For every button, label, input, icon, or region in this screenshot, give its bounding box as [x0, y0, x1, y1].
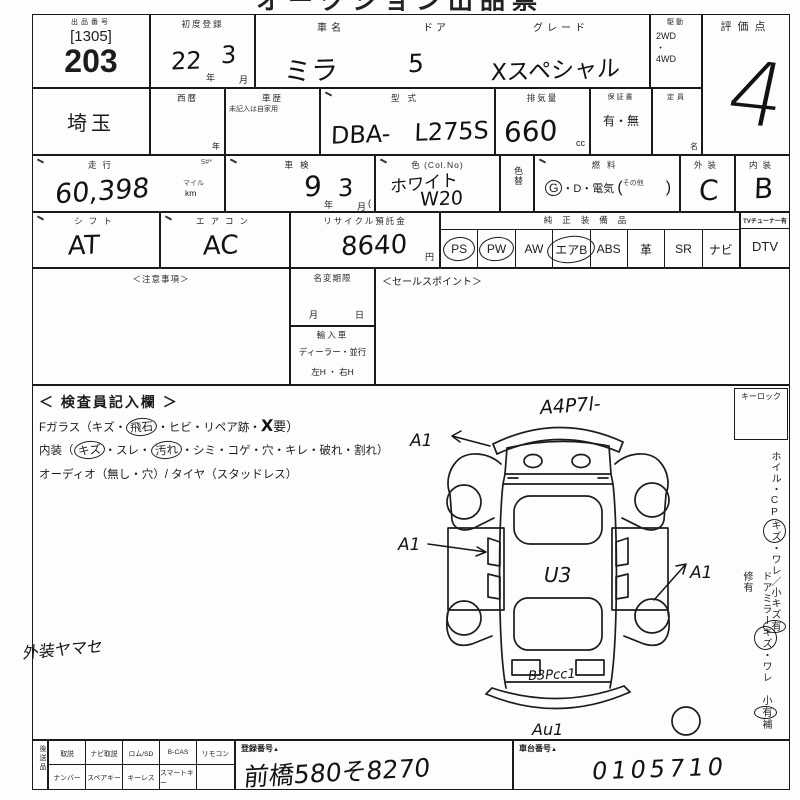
drive-label: 駆動 — [651, 17, 701, 27]
aircon-value: AC — [202, 230, 239, 261]
equipment-label: 純正装備品 — [441, 214, 739, 226]
exterior-grade: C — [698, 174, 719, 208]
notice-box: ＜注意事項＞ — [32, 268, 290, 385]
arrow-right — [654, 564, 686, 600]
warranty-box: 保証書 有・無 — [590, 88, 652, 155]
capacity-unit: 名 — [690, 141, 698, 152]
front-wheel-right — [635, 483, 669, 517]
lot-header: 出品番号 — [33, 17, 149, 27]
equipment-row: PS PW AW エアB ABS 革 SR ナビ — [441, 230, 739, 268]
shift-value: AT — [67, 230, 100, 261]
fuel-other-label: その他 — [623, 180, 644, 187]
damage-code-bumper: Au1 — [531, 720, 563, 739]
cell-empty — [197, 765, 234, 789]
capacity-box: 定員 名 — [652, 88, 702, 155]
model-code-box: 型式 DBA- L275S — [320, 88, 495, 155]
warranty-value: 有・無 — [591, 112, 651, 129]
capacity-label: 定員 — [653, 92, 701, 102]
grade-value: Xスペシャル — [490, 49, 620, 88]
blank-circle — [672, 707, 700, 735]
headlight-right — [572, 455, 590, 468]
drive-box: 駆動 2WD ・ 4WD — [650, 14, 702, 88]
name-change-box: 名変期限 月 日 — [290, 268, 375, 326]
cell-remote: リモコン — [197, 741, 234, 765]
shift-box: シフト AT — [32, 212, 160, 268]
later-items-box: 後送品 — [32, 740, 48, 790]
exterior-box: 外装 C — [680, 155, 735, 212]
page-title: オークション出品票（仮） — [225, 0, 575, 11]
inspector-line-interior: 内装（キズ・スレ・汚れ・シミ・コゲ・穴・キレ・破れ・割れ） — [39, 441, 389, 459]
mileage-box: 走行 S#* マイル km 60,398 — [32, 155, 225, 212]
damage-code-u3: U3 — [544, 563, 571, 587]
interior-label: 内装 — [736, 159, 789, 171]
drive-dot: ・ — [651, 41, 701, 54]
car-name-box: 車名 ドア グレード ミラ 5 Xスペシャル — [255, 14, 650, 88]
front-fender-left — [448, 454, 501, 530]
cell-manual: 取説 — [49, 741, 86, 765]
glass-x-mark: X — [260, 416, 273, 435]
door-value: 5 — [407, 49, 424, 79]
import-handle-side: 左H ・ 右H — [291, 366, 374, 378]
equip-pw: PW — [485, 241, 508, 257]
wheel-cp-label: ホイル・CP — [769, 451, 780, 519]
interior-dirt-circled: 汚れ — [150, 440, 182, 461]
shaken-box: 車検 9 年 3 月 ( — [225, 155, 375, 212]
tv-tuner-label: TVチューナー有 — [741, 216, 789, 225]
mileage-value: 60,398 — [54, 173, 150, 211]
grade-label: グレード — [506, 19, 616, 34]
keylock-label: キーロック — [735, 391, 787, 402]
equip-sr: SR — [673, 241, 694, 257]
registration-value: 前橋580そ8270 — [243, 748, 432, 794]
first-reg-label: 初度登録 — [151, 18, 254, 30]
auction-sheet: オークション出品票（仮） 出品番号 [1305] 203 初度登録 22 年 3… — [0, 0, 800, 800]
first-registration-box: 初度登録 22 年 3 月 — [150, 14, 255, 88]
mileage-unit-mile: マイル — [183, 178, 204, 188]
interior-mid: ・スレ・ — [105, 445, 151, 457]
interior-scratch-circled: キズ — [73, 440, 105, 461]
registration-label: 登録番号▲ — [241, 743, 279, 754]
score-value: 4 — [718, 41, 795, 148]
mileage-label: 走行 — [88, 159, 117, 171]
recycle-box: リサイクル預託金 8640 円 — [290, 212, 440, 268]
rear-wheel-left — [447, 601, 481, 635]
warranty-label: 保証書 — [591, 92, 651, 102]
fuel-box: 燃料 G・D・電気 (その他) — [534, 155, 680, 212]
displacement-label: 排気量 — [496, 92, 589, 104]
fuel-paren-close: ) — [666, 179, 671, 196]
recycle-label: リサイクル預託金 — [291, 215, 439, 227]
exterior-label: 外装 — [681, 159, 734, 171]
shaken-paren: ( — [368, 198, 371, 208]
registration-number-box: 登録番号▲ 前橋580そ8270 — [235, 740, 513, 790]
color-change-label: 色替 — [512, 166, 525, 186]
inspector-title: ＜ 検査員記入欄 ＞ — [39, 392, 179, 412]
taillight-right — [576, 660, 604, 675]
headlight-left — [524, 455, 542, 468]
fuel-paren-open: ( — [617, 179, 622, 196]
equip-ps: PS — [449, 241, 469, 257]
model-label: 型式 — [321, 92, 494, 104]
drive-2wd: 2WD — [651, 31, 701, 41]
cell-navi-manual: ナビ取説 — [86, 741, 123, 765]
front-wheel-left — [447, 485, 481, 519]
cell-rom-sd: ロム/SD — [123, 741, 160, 765]
equip-airbag: エアB — [553, 240, 589, 259]
cell-smart-key: スマートキー — [160, 765, 197, 789]
interior-box: 内装 B — [735, 155, 790, 212]
glass-pre: Fガラス（キズ・ — [39, 422, 126, 434]
equip-navi: ナビ — [707, 240, 735, 259]
name-change-label: 名変期限 — [291, 272, 374, 284]
mirror-scratch-circled: キズ — [754, 626, 777, 650]
prefecture-box: 埼玉 — [32, 88, 150, 155]
fuel-gasoline: G — [544, 179, 563, 196]
damage-code-a1-left: A1 — [397, 535, 420, 555]
name-change-month: 月 — [309, 308, 318, 321]
seireki-box: 西暦 年 — [150, 88, 225, 155]
name-change-day: 日 — [355, 308, 364, 321]
damage-code-a1-upper: A1 — [409, 431, 432, 451]
windshield — [514, 496, 602, 544]
first-reg-year: 22 — [171, 46, 203, 75]
color-box: 色 (Col.No) ホワイト W20 — [375, 155, 500, 212]
chassis-value: 0105710 — [590, 753, 729, 786]
shaken-label: 車検 — [226, 159, 374, 171]
glass-end: 要） — [273, 419, 299, 434]
import-label: 輸入車 — [291, 329, 374, 341]
car-name-value: ミラ — [283, 48, 338, 89]
drive-4wd: 4WD — [651, 54, 701, 64]
shaken-year-unit: 年 — [324, 198, 333, 211]
mileage-flags: S#* — [201, 159, 212, 166]
interior-grade: B — [753, 172, 773, 206]
fuel-label: 燃料 — [535, 159, 679, 171]
chassis-label: 車台番号▲ — [519, 743, 557, 754]
mirror-condition-column: ドアミラーキズ・ワレ 小有補修有 — [739, 571, 777, 736]
prefecture: 埼玉 — [33, 107, 149, 136]
rear-bumper — [492, 686, 624, 699]
front-fender-right — [615, 454, 668, 530]
model-value: DBA- L275S — [330, 110, 489, 151]
rear-wheel-right — [635, 599, 669, 633]
recycle-value: 8640 — [340, 230, 407, 262]
lot-number: 203 — [33, 45, 149, 77]
equipment-box: 純正装備品 PS PW AW エアB ABS 革 SR ナビ — [440, 212, 740, 268]
arrow-left-mid — [428, 544, 486, 556]
equip-abs: ABS — [595, 241, 623, 257]
equip-leather: 革 — [638, 240, 654, 259]
glass-stone-chip-circled: 飛石 — [126, 417, 158, 438]
year-unit: 年 — [206, 71, 215, 84]
color-change-box: 色替 — [500, 155, 534, 212]
hood — [505, 441, 611, 474]
sales-point-label: ＜セールスポイント＞ — [376, 269, 789, 288]
recycle-unit: 円 — [425, 250, 434, 263]
aircon-box: エアコン AC — [160, 212, 290, 268]
fuel-options: ・D・電気 — [562, 183, 614, 195]
color-code: W20 — [420, 187, 464, 211]
rear-fender-left — [447, 612, 492, 645]
vehicle-damage-diagram: A4P7l- A1 A1 A1 U3 B3Pcc1 Au1 — [390, 388, 735, 740]
history-label: 車歴 — [226, 92, 319, 104]
wheel-scratch-circled: キズ — [763, 519, 786, 543]
glass-mid: ・ヒビ・リペア跡・ — [157, 422, 261, 434]
history-box: 車歴 未記入は自家用 — [225, 88, 320, 155]
cell-spare-key: スペアキー — [86, 765, 123, 789]
mirror-yes-circled: 有 — [754, 706, 777, 719]
door-label: ドア — [406, 19, 466, 34]
notice-label: ＜注意事項＞ — [33, 273, 289, 285]
damage-code-rear: B3Pcc1 — [528, 667, 576, 684]
cell-number-plate: ナンバー — [49, 765, 86, 789]
mirror-mid: ・ワレ 小 — [760, 650, 771, 706]
seireki-unit: 年 — [212, 141, 220, 152]
import-box: 輸入車 ディーラー・並行 左H ・ 右H — [290, 326, 375, 385]
displacement-unit: cc — [576, 138, 585, 148]
history-note: 未記入は自家用 — [226, 104, 319, 114]
dtv-box: TVチューナー有 DTV — [740, 212, 790, 268]
inspector-line-glass: Fガラス（キズ・飛石・ヒビ・リペア跡・X要） — [39, 416, 299, 436]
mirror-label: ドアミラー — [760, 571, 771, 626]
month-unit: 月 — [239, 73, 248, 86]
mileage-unit-km: km — [185, 188, 196, 198]
shift-label: シフト — [33, 215, 159, 227]
arrow-left-upper — [452, 431, 490, 446]
score-label: 評価点 — [703, 18, 789, 34]
equip-dtv: DTV — [741, 239, 789, 254]
shaken-year: 9 — [303, 170, 322, 204]
damage-code-pillar: A4P7l- — [537, 393, 601, 419]
interior-end: ・シミ・コゲ・穴・キレ・破れ・割れ） — [182, 445, 389, 457]
displacement-value: 660 — [503, 114, 558, 149]
inspector-line-audio-tire: オーディオ（無し・穴）/ タイヤ（スタッドレス） — [39, 466, 297, 482]
interior-pre: 内装（ — [39, 445, 74, 457]
rear-window — [514, 598, 602, 650]
chassis-number-box: 車台番号▲ 0105710 — [513, 740, 790, 790]
score-box: 評価点 4 — [702, 14, 790, 155]
sales-point-box: ＜セールスポイント＞ — [375, 268, 790, 385]
accessories-grid: 取説 ナビ取説 ロム/SD B-CAS リモコン ナンバー スペアキー キーレス… — [48, 740, 235, 790]
equip-aw: AW — [522, 241, 545, 257]
keylock-box: キーロック — [734, 388, 788, 440]
cell-keyless: キーレス — [123, 765, 160, 789]
exterior-wear-note: 外装ヤマセ — [22, 632, 104, 663]
car-name-label: 車名 — [286, 19, 376, 34]
displacement-box: 排気量 660 cc — [495, 88, 590, 155]
aircon-label: エアコン — [161, 215, 289, 227]
damage-code-a1-right: A1 — [689, 563, 712, 583]
first-reg-month: 3 — [221, 41, 237, 70]
lot-number-box: 出品番号 [1305] 203 — [32, 14, 150, 88]
later-items-label: 後送品 — [37, 745, 47, 772]
shaken-month: 3 — [338, 174, 354, 203]
cell-bcas: B-CAS — [160, 741, 197, 765]
seireki-label: 西暦 — [151, 92, 224, 104]
import-dealer-parallel: ディーラー・並行 — [291, 346, 374, 358]
